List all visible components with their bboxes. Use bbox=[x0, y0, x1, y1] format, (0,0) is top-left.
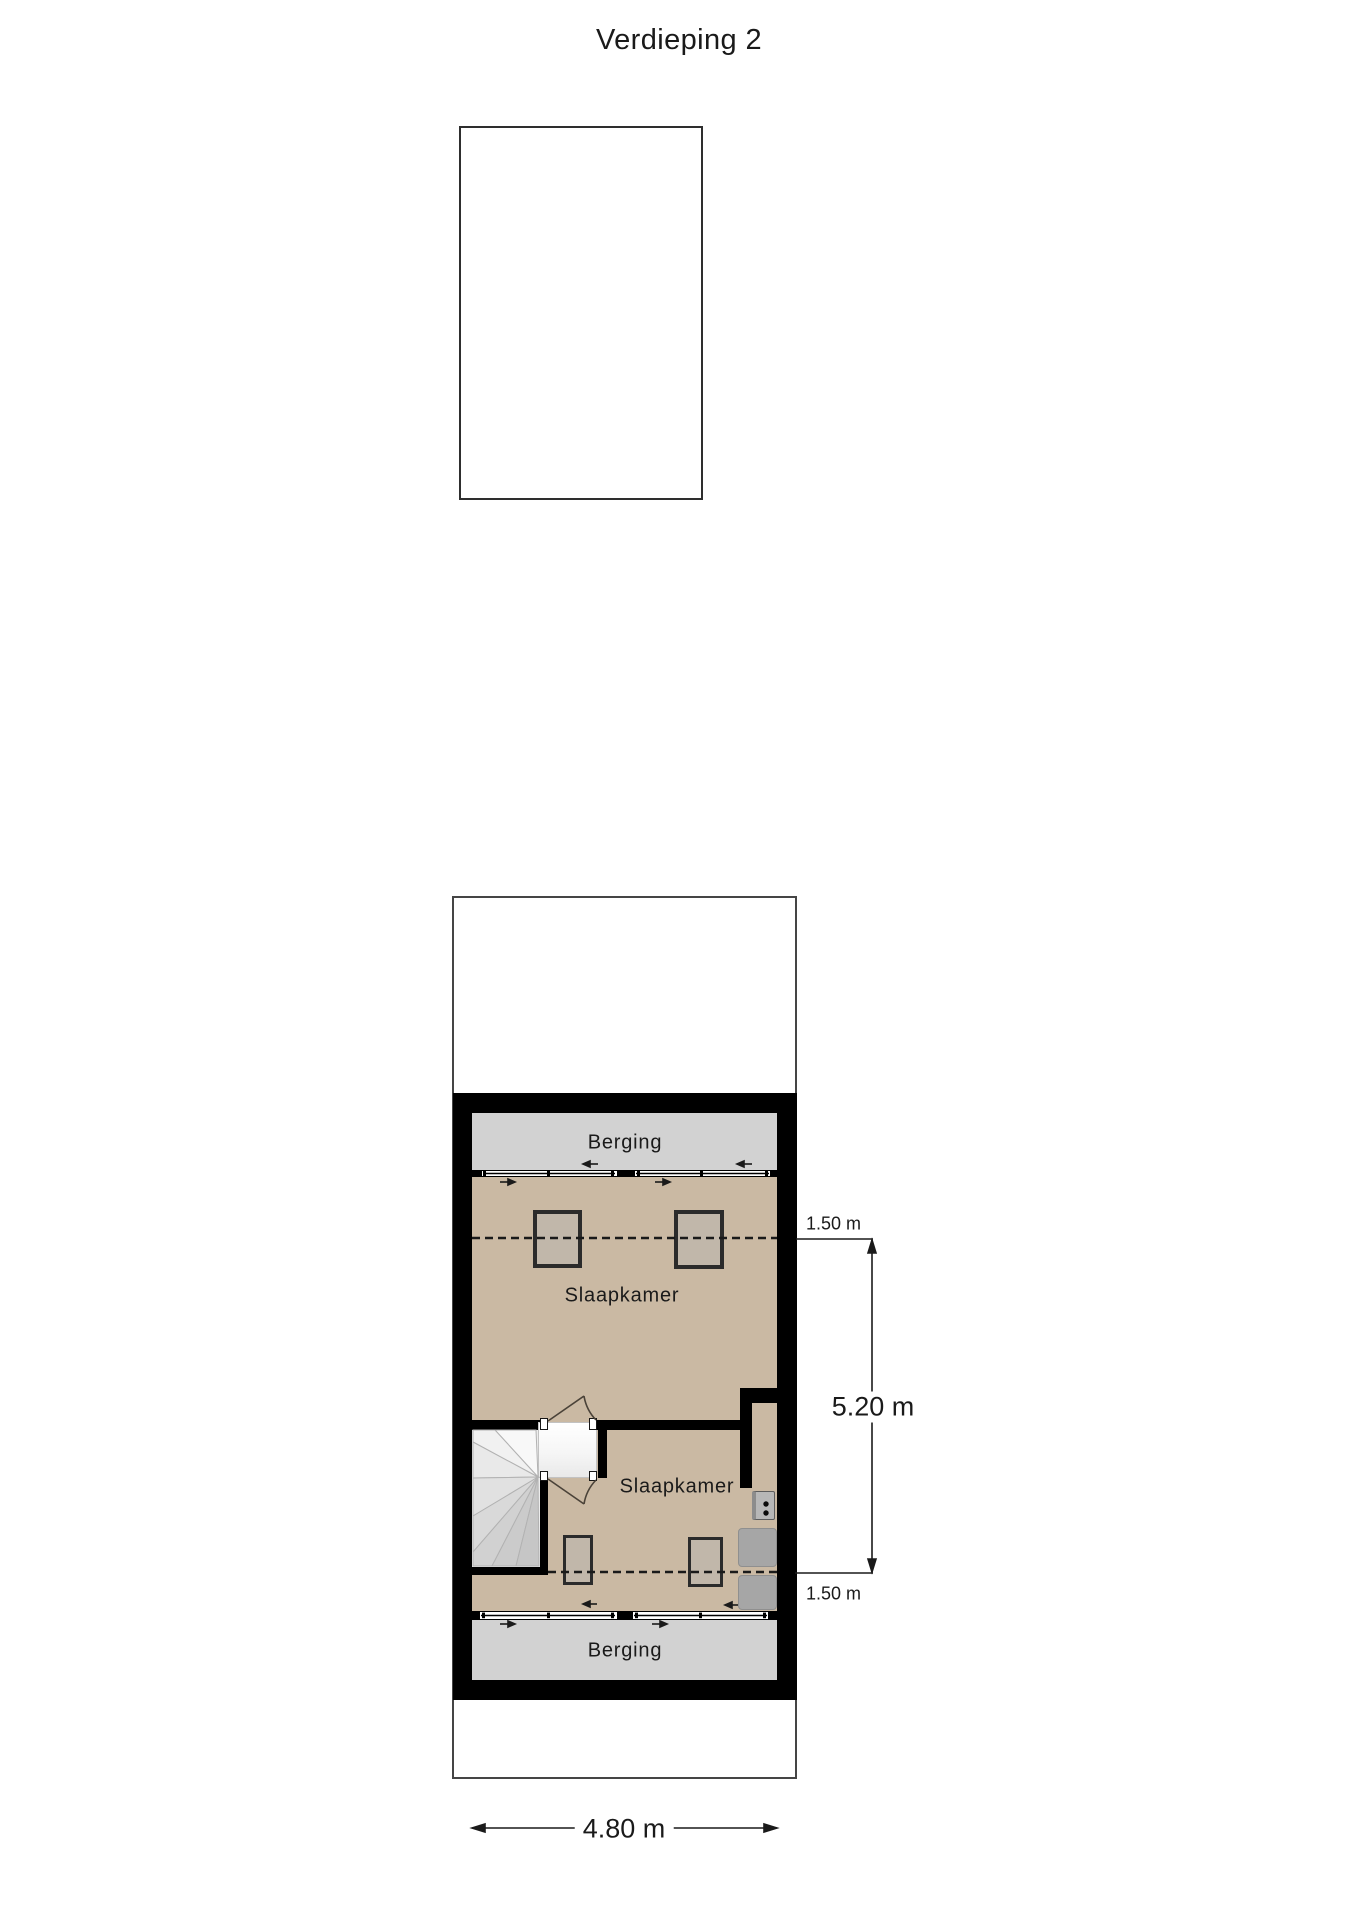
dim-width-total-label: 4.80 m bbox=[575, 1814, 674, 1845]
room-label-slaapkamer-top: Slaapkamer bbox=[565, 1285, 680, 1308]
room-label-slaapkamer-bottom: Slaapkamer bbox=[620, 1476, 735, 1499]
dim-height-top-label: 1.50 m bbox=[806, 1214, 861, 1235]
room-label-berging-bottom: Berging bbox=[588, 1640, 663, 1663]
staircase-treads bbox=[473, 1430, 539, 1566]
door-swing-bottom bbox=[548, 1479, 596, 1504]
floorplan-page: Verdieping 2 bbox=[0, 0, 1358, 1920]
ventilation-unit-dots bbox=[763, 1501, 768, 1515]
room-label-berging-top: Berging bbox=[588, 1132, 663, 1155]
plan-linework bbox=[0, 0, 1358, 1920]
door-swing-top bbox=[548, 1396, 596, 1421]
dim-height-total-label: 5.20 m bbox=[824, 1392, 923, 1423]
dim-height-bottom-label: 1.50 m bbox=[806, 1584, 861, 1605]
